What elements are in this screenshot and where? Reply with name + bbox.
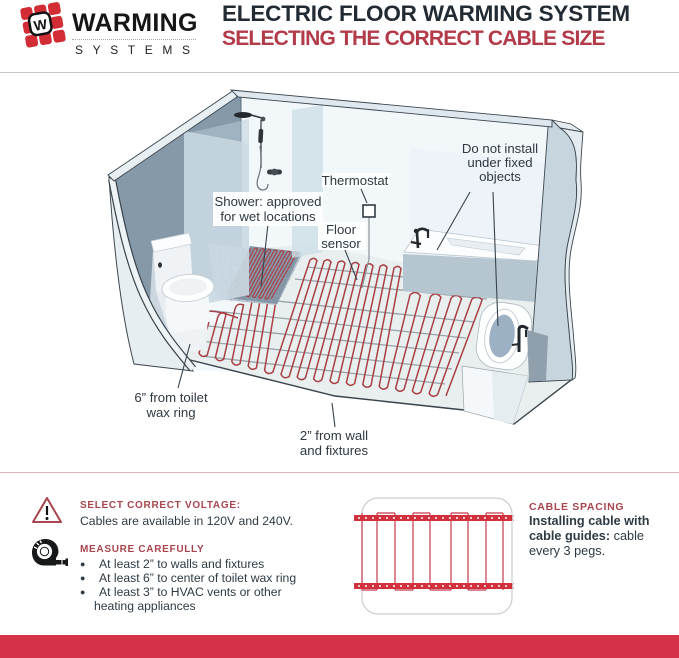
svg-text:wax ring: wax ring: [145, 405, 195, 420]
svg-text:for wet locations: for wet locations: [220, 209, 316, 224]
svg-text:6” from toilet: 6” from toilet: [134, 390, 208, 405]
svg-text:under fixed: under fixed: [467, 155, 532, 170]
svg-text:objects: objects: [479, 169, 521, 184]
svg-text:Thermostat: Thermostat: [322, 173, 389, 188]
svg-text:Do not install: Do not install: [462, 141, 538, 156]
svg-text:sensor: sensor: [321, 236, 361, 251]
svg-text:Shower: approved: Shower: approved: [214, 194, 321, 209]
svg-text:Floor: Floor: [326, 222, 357, 237]
svg-text:2” from wall: 2” from wall: [300, 428, 368, 443]
svg-text:and fixtures: and fixtures: [300, 443, 369, 458]
